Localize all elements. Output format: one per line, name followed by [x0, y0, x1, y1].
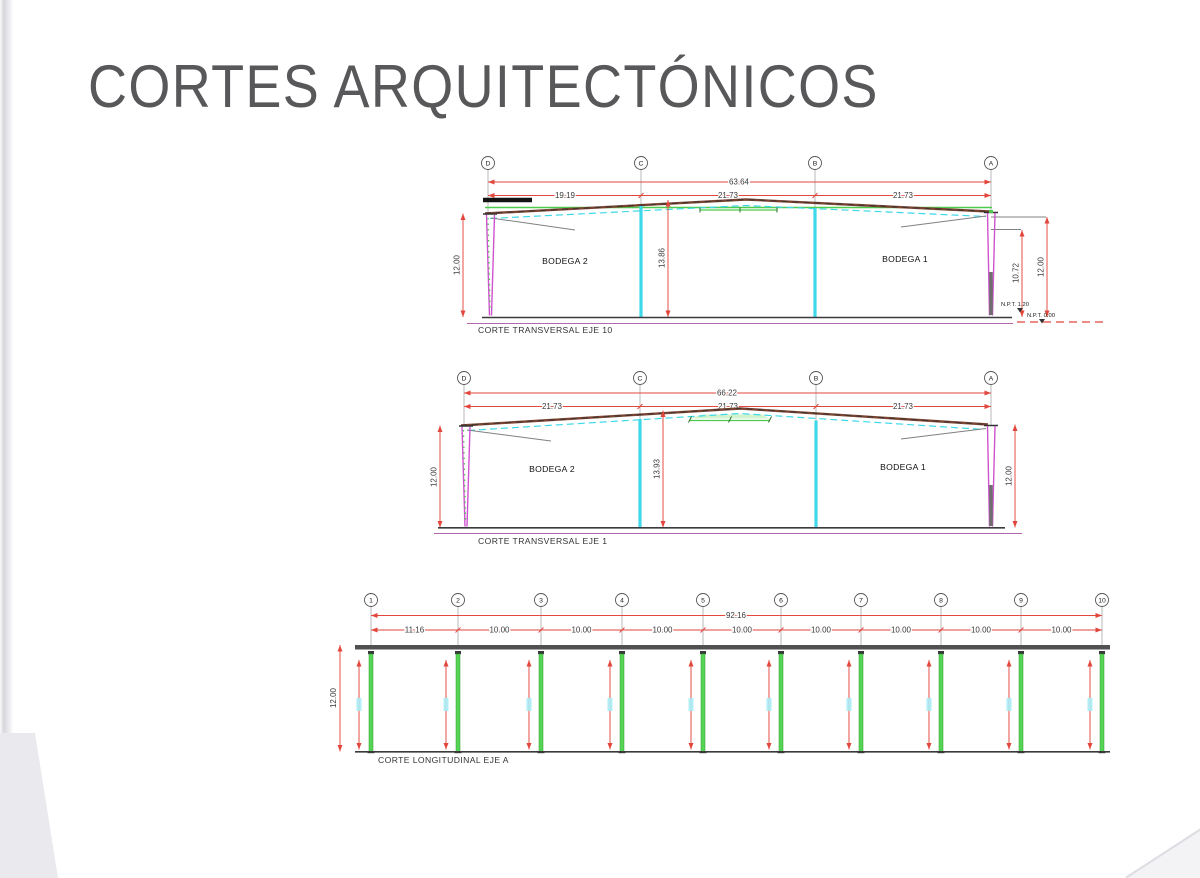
column-dim-marker: [927, 698, 932, 711]
slide-title: CORTES ARQUITECTÓNICOS: [88, 52, 879, 121]
grid-bubble-label: 9: [1019, 597, 1023, 604]
column-dimensions: [357, 660, 1093, 750]
steel-column: [369, 654, 373, 752]
eave-beam: [355, 645, 1110, 650]
grid-bubble-label: 10: [1098, 597, 1106, 604]
grid-bubble-label: D: [462, 375, 467, 382]
drawing-corte-transversal-eje-10: D C B A 63.64 19.19 21.73 21.73: [455, 150, 1120, 345]
dim-total: 66.22: [717, 389, 738, 398]
horizontal-dimensions: 63.64 19.19 21.73 21.73: [488, 178, 991, 200]
dim-span: 21.73: [893, 191, 914, 200]
dim-span: 21.73: [718, 191, 739, 200]
horizontal-dimensions: 92.16 11.16 10.00 10.00 10.00 10.00 10.0…: [371, 611, 1102, 635]
column-dim-marker: [1088, 698, 1093, 711]
vertical-dimensions: 12.00: [329, 645, 340, 752]
column-dim-marker: [527, 698, 532, 711]
grid-bubble-label: A: [989, 375, 994, 382]
dim-height-left: 12.00: [329, 687, 338, 708]
dim-span: 10.00: [811, 626, 832, 635]
dim-span: 21.73: [893, 402, 914, 411]
grid-bubble-label: B: [813, 160, 818, 167]
dim-span: 10.00: [571, 626, 592, 635]
steel-column: [1100, 654, 1104, 752]
steel-column: [779, 654, 783, 752]
dim-span: 21.73: [542, 402, 563, 411]
columns: [368, 651, 1106, 753]
column-dim-marker: [767, 698, 772, 711]
column-dim-marker: [847, 698, 852, 711]
dim-span: 11.16: [405, 626, 425, 635]
drawing-caption: CORTE TRANSVERSAL EJE 10: [478, 325, 613, 335]
roof-structure: [461, 409, 988, 442]
grid-bubble-label: A: [989, 160, 994, 167]
dim-span: 10.00: [489, 626, 510, 635]
dim-span: 10.00: [652, 626, 673, 635]
grid-bubble-label: 3: [539, 597, 543, 604]
steel-column: [939, 654, 943, 752]
drawing-caption: CORTE LONGITUDINAL EJE A: [378, 755, 509, 765]
column-dim-marker: [1007, 698, 1012, 711]
room-label-bodega-2: BODEGA 2: [529, 464, 575, 474]
column-dim-marker: [608, 698, 613, 711]
grid-bubble-label: C: [639, 160, 644, 167]
floor-lines: [467, 318, 1105, 324]
grid-bubble-label: 2: [456, 597, 460, 604]
dim-span: 10.00: [732, 626, 753, 635]
dim-total: 63.64: [729, 178, 750, 187]
grid-bubble-label: 1: [369, 597, 373, 604]
dim-span: 10.00: [1051, 626, 1072, 635]
steel-column: [1019, 654, 1023, 752]
grid-bubble-label: 8: [939, 597, 943, 604]
grid-bubble-label: B: [814, 375, 819, 382]
horizontal-dimensions: 66.22 21.73 21.73 21.73: [464, 389, 991, 411]
dim-height-right: 12.00: [1005, 465, 1014, 486]
steel-column: [859, 654, 863, 752]
npt-upper-label: N.P.T. 1.20: [1001, 302, 1029, 308]
dim-height-left: 12.00: [430, 466, 439, 487]
npt-lower-label: N.P.T. 0.00: [1027, 313, 1055, 319]
corner-wedge-bottom-left: [0, 733, 60, 878]
slide: CORTES ARQUITECTÓNICOS D C B A 63.64 19.…: [0, 0, 1200, 878]
level-marker-icon: [1039, 319, 1045, 324]
dim-height-center: 13.86: [658, 247, 667, 268]
grid-bubble-label: 5: [701, 597, 705, 604]
column-dim-marker: [357, 698, 362, 711]
floor-lines: [434, 528, 1022, 534]
grid-bubble-label: 7: [859, 597, 863, 604]
grid-bubble-label: D: [486, 160, 491, 167]
steel-column: [539, 654, 543, 752]
dim-span: 19.19: [555, 191, 576, 200]
roof-structure: [483, 200, 1046, 231]
drawing-corte-transversal-eje-1: D C B A 66.22 21.73 21.73 21.73: [430, 365, 1070, 560]
room-label-bodega-2: BODEGA 2: [542, 256, 588, 266]
grid-bubble-label: C: [638, 375, 643, 382]
dim-height-center: 13.93: [653, 458, 662, 479]
grid-bubble-label: 6: [779, 597, 783, 604]
grid-bubble-label: 4: [620, 597, 624, 604]
column-dim-marker: [689, 698, 694, 711]
steel-column: [620, 654, 624, 752]
room-label-bodega-1: BODEGA 1: [880, 462, 926, 472]
dim-height-right-inner: 10.72: [1012, 262, 1021, 283]
dim-total: 92.16: [726, 611, 747, 620]
column-dim-marker: [444, 698, 449, 711]
dim-span: 10.00: [891, 626, 912, 635]
drawing-caption: CORTE TRANSVERSAL EJE 1: [478, 536, 607, 546]
dim-height-right-outer: 12.00: [1037, 256, 1046, 277]
dim-height-left: 12.00: [453, 254, 462, 275]
steel-column: [701, 654, 705, 752]
dim-span: 10.00: [971, 626, 992, 635]
drawing-corte-longitudinal-eje-a: 1 2 3 4 5 6 7 8 9 10 92.16 11.16 10.00 1…: [325, 585, 1125, 775]
room-label-bodega-1: BODEGA 1: [882, 254, 928, 264]
vertical-dimensions: 12.00 13.93 12.00: [430, 411, 1016, 528]
steel-column: [456, 654, 460, 752]
